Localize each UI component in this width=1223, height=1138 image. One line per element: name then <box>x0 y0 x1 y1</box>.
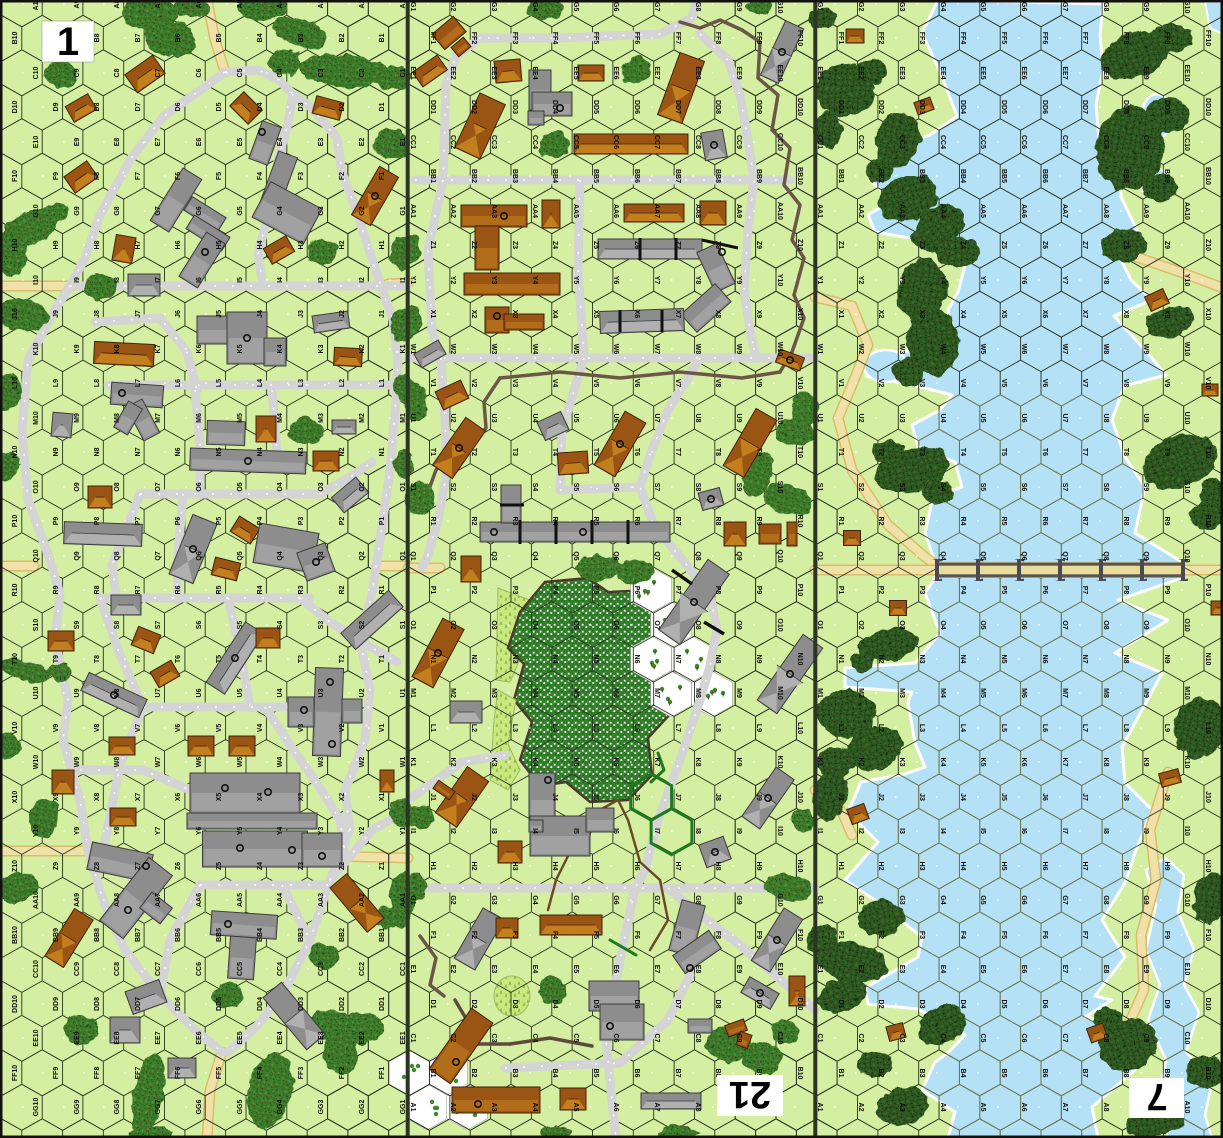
svg-text:B5: B5 <box>216 33 223 42</box>
svg-text:T5: T5 <box>216 655 223 663</box>
svg-text:DD1: DD1 <box>379 997 386 1011</box>
svg-text:L4: L4 <box>959 724 966 732</box>
svg-text:R1: R1 <box>429 517 436 526</box>
svg-text:EE6: EE6 <box>612 66 619 79</box>
svg-text:Y2: Y2 <box>359 827 366 836</box>
svg-text:T6: T6 <box>633 448 640 456</box>
svg-text:N9: N9 <box>755 655 762 664</box>
svg-text:T3: T3 <box>511 448 518 456</box>
svg-text:I10: I10 <box>776 826 783 836</box>
svg-text:Z4: Z4 <box>257 862 264 870</box>
svg-text:G3: G3 <box>490 895 497 904</box>
svg-text:U8: U8 <box>114 688 121 697</box>
svg-text:Y9: Y9 <box>74 827 81 836</box>
svg-text:W7: W7 <box>155 757 162 768</box>
svg-text:DD7: DD7 <box>674 100 681 114</box>
svg-text:GG6: GG6 <box>196 1100 203 1115</box>
svg-text:Y2: Y2 <box>449 276 456 285</box>
svg-text:FF5: FF5 <box>1000 32 1007 45</box>
svg-text:Q10: Q10 <box>776 549 783 562</box>
svg-text:BB9: BB9 <box>1163 169 1170 183</box>
svg-text:V10: V10 <box>796 377 803 390</box>
svg-text:P5: P5 <box>216 517 223 526</box>
svg-text:CC9: CC9 <box>74 962 81 976</box>
svg-text:AA4: AA4 <box>277 893 284 907</box>
svg-text:U7: U7 <box>155 688 162 697</box>
svg-text:V4: V4 <box>257 724 264 733</box>
svg-text:N3: N3 <box>511 655 518 664</box>
svg-text:F1: F1 <box>379 172 386 180</box>
svg-text:BB8: BB8 <box>1122 169 1129 183</box>
svg-text:R3: R3 <box>298 585 305 594</box>
svg-text:O5: O5 <box>572 620 579 629</box>
svg-text:B8: B8 <box>1122 1069 1129 1078</box>
svg-text:U1: U1 <box>409 414 416 423</box>
svg-text:N7: N7 <box>135 447 142 456</box>
svg-text:H1: H1 <box>429 862 436 871</box>
svg-text:E2: E2 <box>857 965 864 974</box>
svg-text:J9: J9 <box>755 793 762 801</box>
svg-text:F9: F9 <box>53 172 60 180</box>
svg-text:H4: H4 <box>959 862 966 871</box>
svg-text:EE8: EE8 <box>114 1031 121 1044</box>
svg-text:W1: W1 <box>409 344 416 355</box>
svg-text:G4: G4 <box>531 895 538 904</box>
svg-text:M2: M2 <box>857 688 864 698</box>
svg-text:DD4: DD4 <box>257 997 264 1011</box>
svg-text:BB2: BB2 <box>470 169 477 183</box>
svg-text:L5: L5 <box>592 724 599 732</box>
svg-text:Z7: Z7 <box>1081 241 1088 249</box>
svg-text:P3: P3 <box>511 586 518 595</box>
svg-text:W8: W8 <box>694 344 701 355</box>
svg-text:K3: K3 <box>490 758 497 767</box>
svg-text:BB7: BB7 <box>135 928 142 942</box>
svg-text:H3: H3 <box>918 862 925 871</box>
svg-text:J4: J4 <box>959 793 966 801</box>
svg-text:V7: V7 <box>1081 379 1088 388</box>
svg-text:I3: I3 <box>898 828 905 834</box>
svg-text:CC7: CC7 <box>1061 135 1068 149</box>
svg-text:D9: D9 <box>755 1000 762 1009</box>
svg-text:Y9: Y9 <box>735 276 742 285</box>
svg-text:BB10: BB10 <box>796 167 803 185</box>
svg-text:P1: P1 <box>837 586 844 595</box>
svg-text:J7: J7 <box>674 793 681 801</box>
svg-text:S5: S5 <box>572 483 579 492</box>
svg-text:K6: K6 <box>1020 758 1027 767</box>
svg-text:G6: G6 <box>196 206 203 215</box>
svg-text:AA9: AA9 <box>1142 204 1149 218</box>
svg-text:W9: W9 <box>1142 344 1149 355</box>
svg-text:CC7: CC7 <box>653 135 660 149</box>
svg-text:M10: M10 <box>33 411 40 425</box>
svg-text:Z9: Z9 <box>1163 241 1170 249</box>
svg-text:G2: G2 <box>449 895 456 904</box>
svg-text:Y6: Y6 <box>1020 276 1027 285</box>
svg-text:S9: S9 <box>1142 483 1149 492</box>
svg-text:M6: M6 <box>196 413 203 423</box>
svg-text:F9: F9 <box>755 931 762 939</box>
svg-text:T4: T4 <box>257 655 264 663</box>
svg-text:X4: X4 <box>551 310 558 319</box>
svg-text:F2: F2 <box>877 931 884 939</box>
svg-text:CC2: CC2 <box>449 135 456 149</box>
svg-text:A6: A6 <box>1020 1103 1027 1112</box>
svg-text:N7: N7 <box>1081 655 1088 664</box>
svg-text:L4: L4 <box>257 379 264 387</box>
svg-text:DD6: DD6 <box>1041 100 1048 114</box>
svg-text:T4: T4 <box>551 448 558 456</box>
svg-text:L6: L6 <box>175 379 182 387</box>
svg-text:Q2: Q2 <box>857 551 864 560</box>
svg-text:D8: D8 <box>94 102 101 111</box>
svg-text:Q10: Q10 <box>1183 549 1190 562</box>
svg-text:H8: H8 <box>1122 862 1129 871</box>
svg-text:O2: O2 <box>449 620 456 629</box>
svg-text:S4: S4 <box>939 483 946 492</box>
svg-text:Y10: Y10 <box>776 274 783 287</box>
svg-text:I3: I3 <box>318 277 325 283</box>
svg-text:AA5: AA5 <box>237 893 244 907</box>
svg-text:X5: X5 <box>216 793 223 802</box>
svg-text:X4: X4 <box>257 793 264 802</box>
svg-text:FF10: FF10 <box>1204 30 1211 46</box>
svg-text:BB1: BB1 <box>429 169 436 183</box>
svg-text:Q5: Q5 <box>237 551 244 560</box>
svg-text:BB8: BB8 <box>714 169 721 183</box>
svg-text:T10: T10 <box>12 653 19 665</box>
svg-text:E7: E7 <box>155 138 162 147</box>
svg-text:U10: U10 <box>33 686 40 699</box>
svg-text:U6: U6 <box>196 688 203 697</box>
svg-text:F10: F10 <box>796 929 803 941</box>
svg-text:F1: F1 <box>429 931 436 939</box>
svg-text:R9: R9 <box>755 517 762 526</box>
svg-text:BB7: BB7 <box>1081 169 1088 183</box>
svg-text:T9: T9 <box>53 655 60 663</box>
svg-text:N1: N1 <box>379 447 386 456</box>
svg-text:S9: S9 <box>735 483 742 492</box>
svg-text:GG9: GG9 <box>74 1100 81 1115</box>
svg-text:I4: I4 <box>939 828 946 834</box>
svg-text:P2: P2 <box>877 586 884 595</box>
svg-text:T1: T1 <box>837 448 844 456</box>
svg-text:DD8: DD8 <box>94 997 101 1011</box>
svg-text:I5: I5 <box>979 828 986 834</box>
svg-text:O4: O4 <box>531 620 538 629</box>
svg-text:I8: I8 <box>1102 828 1109 834</box>
svg-text:W5: W5 <box>572 344 579 355</box>
svg-text:O7: O7 <box>155 482 162 491</box>
svg-text:P9: P9 <box>1163 586 1170 595</box>
svg-text:Z9: Z9 <box>53 862 60 870</box>
svg-text:H5: H5 <box>216 240 223 249</box>
svg-text:BB5: BB5 <box>1000 169 1007 183</box>
svg-text:J10: J10 <box>796 791 803 803</box>
svg-text:CC1: CC1 <box>409 135 416 149</box>
svg-text:Q4: Q4 <box>939 551 946 560</box>
svg-text:E10: E10 <box>1183 963 1190 976</box>
svg-text:B4: B4 <box>257 33 264 42</box>
svg-text:N2: N2 <box>470 655 477 664</box>
svg-text:D9: D9 <box>1163 1000 1170 1009</box>
svg-text:M1: M1 <box>409 688 416 698</box>
svg-text:A5: A5 <box>572 1103 579 1112</box>
svg-text:Y2: Y2 <box>857 276 864 285</box>
svg-text:N7: N7 <box>674 655 681 664</box>
svg-text:Q7: Q7 <box>155 551 162 560</box>
svg-text:EE8: EE8 <box>1102 66 1109 79</box>
svg-text:I2: I2 <box>449 828 456 834</box>
svg-text:K5: K5 <box>572 758 579 767</box>
svg-text:F3: F3 <box>511 931 518 939</box>
svg-text:FF4: FF4 <box>257 1067 264 1080</box>
svg-text:P1: P1 <box>379 517 386 526</box>
svg-text:W8: W8 <box>114 757 121 768</box>
svg-text:K8: K8 <box>114 344 121 353</box>
svg-text:C1: C1 <box>409 1034 416 1043</box>
svg-text:M10: M10 <box>1183 686 1190 700</box>
svg-text:V4: V4 <box>551 379 558 388</box>
svg-text:J6: J6 <box>1041 793 1048 801</box>
svg-text:U5: U5 <box>572 414 579 423</box>
svg-text:N5: N5 <box>216 447 223 456</box>
svg-text:Q3: Q3 <box>490 551 497 560</box>
svg-text:E2: E2 <box>449 965 456 974</box>
svg-text:O10: O10 <box>1183 618 1190 631</box>
svg-text:G7: G7 <box>155 206 162 215</box>
svg-text:B2: B2 <box>470 1069 477 1078</box>
svg-text:Y7: Y7 <box>155 827 162 836</box>
svg-text:D9: D9 <box>53 102 60 111</box>
svg-text:F5: F5 <box>216 172 223 180</box>
svg-text:P1: P1 <box>429 586 436 595</box>
svg-text:T10: T10 <box>796 446 803 458</box>
svg-text:Z3: Z3 <box>918 241 925 249</box>
svg-text:Q5: Q5 <box>979 551 986 560</box>
svg-text:V10: V10 <box>1204 377 1211 390</box>
svg-text:E2: E2 <box>359 138 366 147</box>
svg-text:X4: X4 <box>959 310 966 319</box>
svg-text:EE4: EE4 <box>531 66 538 79</box>
svg-text:P4: P4 <box>551 586 558 595</box>
svg-text:J3: J3 <box>918 793 925 801</box>
svg-text:H5: H5 <box>592 862 599 871</box>
svg-text:E5: E5 <box>979 965 986 974</box>
svg-text:P5: P5 <box>592 586 599 595</box>
svg-text:T7: T7 <box>674 448 681 456</box>
svg-text:S5: S5 <box>237 621 244 630</box>
svg-text:J4: J4 <box>257 310 264 318</box>
svg-text:C4: C4 <box>277 68 284 77</box>
svg-text:C6: C6 <box>196 68 203 77</box>
svg-text:AA10: AA10 <box>1183 202 1190 220</box>
svg-text:U8: U8 <box>1102 414 1109 423</box>
svg-text:N6: N6 <box>633 655 640 664</box>
svg-text:J3: J3 <box>511 793 518 801</box>
svg-text:L2: L2 <box>339 379 346 387</box>
svg-text:O9: O9 <box>1142 620 1149 629</box>
svg-text:FF6: FF6 <box>1041 32 1048 45</box>
svg-text:Z3: Z3 <box>298 862 305 870</box>
svg-text:X9: X9 <box>53 793 60 802</box>
svg-text:BB3: BB3 <box>511 169 518 183</box>
svg-text:DD6: DD6 <box>175 997 182 1011</box>
svg-text:C8: C8 <box>1102 1034 1109 1043</box>
svg-text:R3: R3 <box>511 517 518 526</box>
svg-text:A4: A4 <box>939 1103 946 1112</box>
svg-text:CC9: CC9 <box>735 135 742 149</box>
svg-text:S8: S8 <box>694 483 701 492</box>
svg-text:CC4: CC4 <box>939 135 946 149</box>
svg-text:J2: J2 <box>470 793 477 801</box>
svg-text:X2: X2 <box>339 793 346 802</box>
svg-text:O9: O9 <box>735 620 742 629</box>
svg-text:N2: N2 <box>339 447 346 456</box>
svg-text:K9: K9 <box>1142 758 1149 767</box>
svg-text:DD3: DD3 <box>918 100 925 114</box>
svg-text:D1: D1 <box>429 1000 436 1009</box>
svg-text:N9: N9 <box>53 447 60 456</box>
svg-text:P10: P10 <box>12 515 19 528</box>
svg-text:V10: V10 <box>12 722 19 735</box>
svg-text:J1: J1 <box>837 793 844 801</box>
svg-text:V9: V9 <box>53 724 60 733</box>
svg-text:R5: R5 <box>216 585 223 594</box>
svg-text:U5: U5 <box>237 688 244 697</box>
svg-text:J2: J2 <box>877 793 884 801</box>
svg-text:L8: L8 <box>94 379 101 387</box>
svg-text:H9: H9 <box>755 862 762 871</box>
svg-text:X9: X9 <box>1163 310 1170 319</box>
svg-text:F4: F4 <box>257 172 264 180</box>
svg-text:Q10: Q10 <box>33 549 40 562</box>
svg-text:EE5: EE5 <box>572 66 579 79</box>
svg-text:O9: O9 <box>74 482 81 491</box>
svg-text:S3: S3 <box>898 483 905 492</box>
svg-text:P6: P6 <box>633 586 640 595</box>
svg-text:I1: I1 <box>409 828 416 834</box>
svg-text:N4: N4 <box>959 655 966 664</box>
svg-text:T5: T5 <box>1000 448 1007 456</box>
svg-text:N6: N6 <box>1041 655 1048 664</box>
svg-text:FF2: FF2 <box>877 32 884 45</box>
svg-text:L6: L6 <box>1041 724 1048 732</box>
svg-text:DD6: DD6 <box>633 100 640 114</box>
svg-text:U2: U2 <box>449 414 456 423</box>
svg-text:G5: G5 <box>572 895 579 904</box>
svg-text:O2: O2 <box>857 620 864 629</box>
svg-text:Z10: Z10 <box>12 860 19 872</box>
svg-text:L5: L5 <box>1000 724 1007 732</box>
svg-text:I2: I2 <box>359 277 366 283</box>
svg-text:T2: T2 <box>877 448 884 456</box>
svg-text:GG5: GG5 <box>237 1100 244 1115</box>
svg-text:S10: S10 <box>33 619 40 632</box>
svg-text:1: 1 <box>57 20 79 64</box>
svg-text:FF6: FF6 <box>633 32 640 45</box>
svg-text:O7: O7 <box>653 620 660 629</box>
svg-text:AA3: AA3 <box>318 893 325 907</box>
svg-text:N10: N10 <box>12 445 19 458</box>
svg-text:X3: X3 <box>298 793 305 802</box>
svg-text:EE3: EE3 <box>318 1031 325 1044</box>
svg-text:U9: U9 <box>74 688 81 697</box>
svg-text:V8: V8 <box>94 724 101 733</box>
svg-text:Z2: Z2 <box>877 241 884 249</box>
svg-text:Y3: Y3 <box>490 276 497 285</box>
svg-text:I8: I8 <box>114 277 121 283</box>
svg-text:Z10: Z10 <box>796 239 803 251</box>
svg-text:FF7: FF7 <box>1081 32 1088 45</box>
svg-text:L1: L1 <box>429 724 436 732</box>
svg-text:BB6: BB6 <box>633 169 640 183</box>
svg-text:FF4: FF4 <box>551 32 558 45</box>
svg-text:I7: I7 <box>155 277 162 283</box>
svg-text:E5: E5 <box>572 965 579 974</box>
svg-text:DD2: DD2 <box>877 100 884 114</box>
svg-text:K9: K9 <box>74 344 81 353</box>
svg-text:M4: M4 <box>939 688 946 698</box>
svg-text:F6: F6 <box>175 172 182 180</box>
svg-text:H2: H2 <box>470 862 477 871</box>
svg-text:T6: T6 <box>175 655 182 663</box>
svg-text:G5: G5 <box>237 206 244 215</box>
svg-text:J8: J8 <box>94 310 101 318</box>
svg-text:D7: D7 <box>1081 1000 1088 1009</box>
svg-text:C6: C6 <box>612 1034 619 1043</box>
svg-text:BB1: BB1 <box>837 169 844 183</box>
svg-text:S10: S10 <box>1183 481 1190 494</box>
svg-text:Y8: Y8 <box>694 276 701 285</box>
svg-text:BB3: BB3 <box>918 169 925 183</box>
svg-text:C2: C2 <box>359 68 366 77</box>
svg-text:V1: V1 <box>379 724 386 733</box>
svg-text:H1: H1 <box>837 862 844 871</box>
svg-text:C4: C4 <box>939 1034 946 1043</box>
svg-text:CC8: CC8 <box>1102 135 1109 149</box>
svg-text:G1: G1 <box>409 895 416 904</box>
svg-text:D5: D5 <box>592 1000 599 1009</box>
svg-text:H9: H9 <box>53 240 60 249</box>
svg-text:F8: F8 <box>94 172 101 180</box>
svg-text:L10: L10 <box>12 377 19 389</box>
svg-text:R6: R6 <box>175 585 182 594</box>
svg-text:CC9: CC9 <box>1142 135 1149 149</box>
svg-text:I6: I6 <box>612 828 619 834</box>
svg-text:E8: E8 <box>694 965 701 974</box>
svg-text:O6: O6 <box>1020 620 1027 629</box>
svg-text:BB4: BB4 <box>959 169 966 183</box>
svg-text:R8: R8 <box>714 517 721 526</box>
svg-text:H8: H8 <box>714 862 721 871</box>
svg-text:FF8: FF8 <box>714 32 721 45</box>
svg-text:D10: D10 <box>796 998 803 1011</box>
svg-text:Q9: Q9 <box>735 551 742 560</box>
svg-text:H5: H5 <box>1000 862 1007 871</box>
svg-text:Z4: Z4 <box>551 241 558 249</box>
svg-text:Q3: Q3 <box>318 551 325 560</box>
svg-text:G7: G7 <box>1061 895 1068 904</box>
svg-text:CC10: CC10 <box>33 960 40 978</box>
svg-text:F2: F2 <box>470 931 477 939</box>
svg-text:FF1: FF1 <box>379 1067 386 1080</box>
svg-text:G6: G6 <box>1020 895 1027 904</box>
svg-text:J3: J3 <box>298 310 305 318</box>
svg-text:V7: V7 <box>674 379 681 388</box>
svg-text:G8: G8 <box>114 206 121 215</box>
